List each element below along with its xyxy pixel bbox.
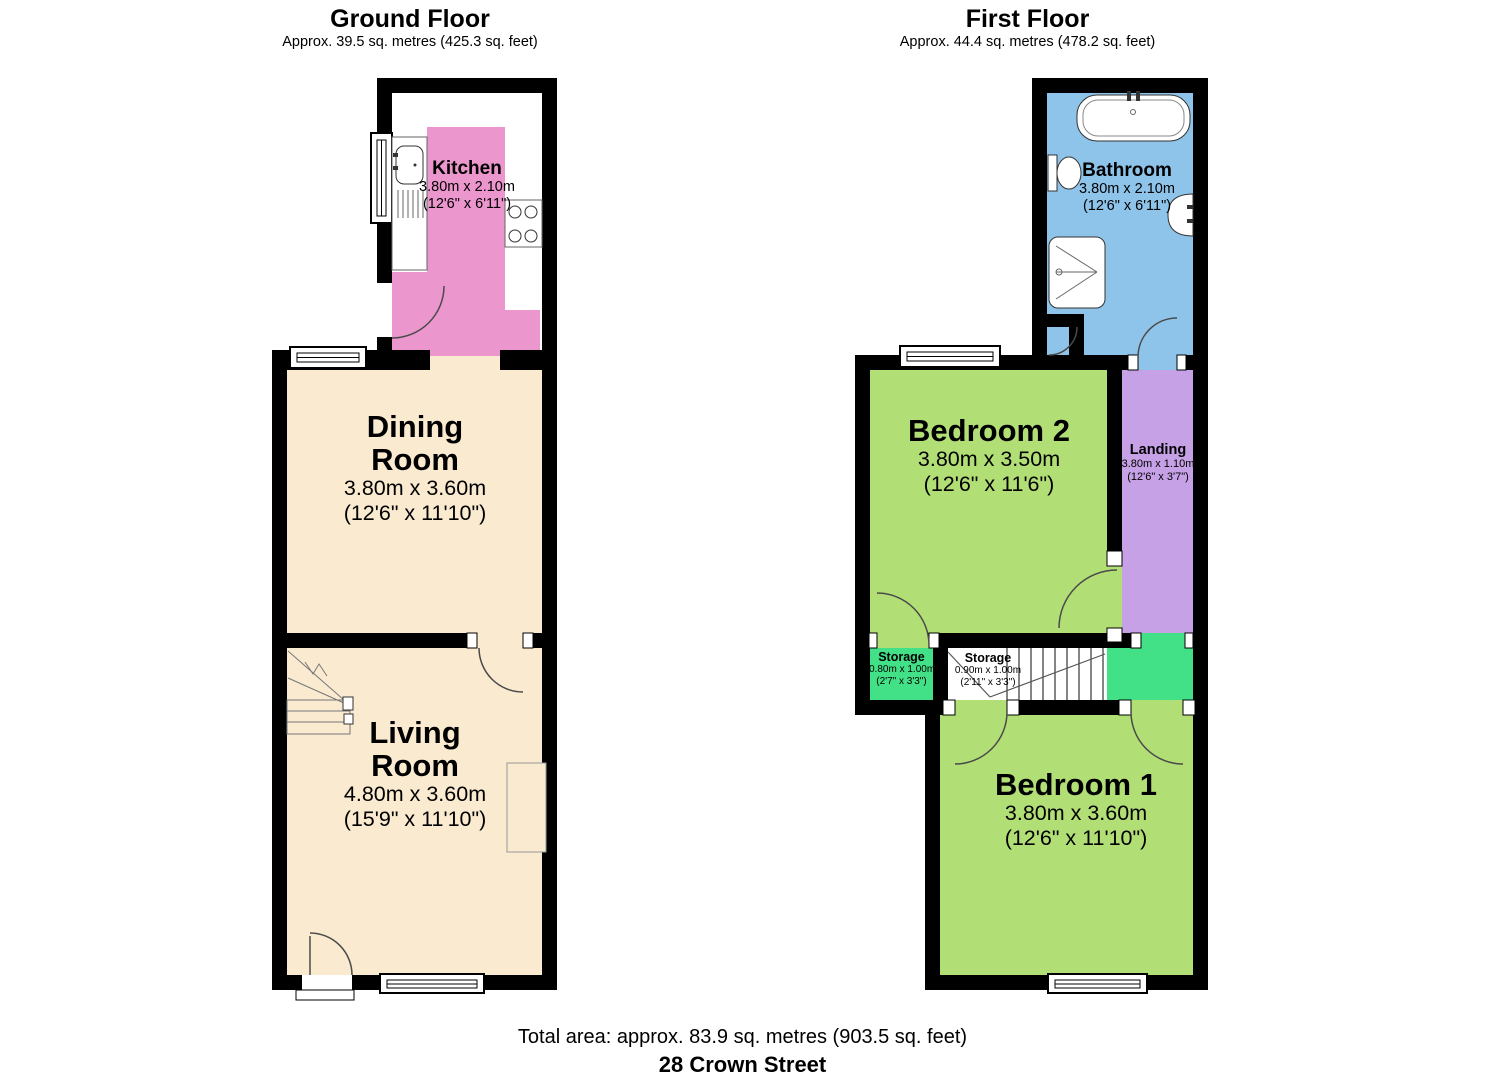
- bedroom1-room-area: [940, 715, 1193, 975]
- hob-icon: [505, 200, 542, 247]
- bedroom1-doorway-right: [1131, 700, 1183, 715]
- floorplan-canvas: Ground Floor Approx. 39.5 sq. metres (42…: [0, 0, 1485, 1080]
- door-jamb: [1128, 355, 1138, 370]
- dining-living-doorway: [477, 633, 523, 648]
- first-floor-plan: [855, 78, 1208, 993]
- front-door-leaf: [296, 990, 354, 1000]
- door-jamb: [869, 633, 877, 648]
- window-icon: [1048, 974, 1147, 993]
- shower-icon: [1049, 237, 1105, 308]
- window-icon: [371, 133, 392, 223]
- bathroom-doorway: [1138, 355, 1177, 370]
- landing-stairs-opening: [1141, 633, 1185, 648]
- chimney-breast: [507, 763, 546, 852]
- window-icon: [900, 346, 1000, 367]
- dining-room-area: [287, 370, 542, 633]
- storage2-room-area: [948, 648, 1107, 700]
- floorplan-drawing: [0, 0, 1485, 1080]
- landing-room-area: [1122, 370, 1193, 633]
- stair-top-area: [1107, 648, 1193, 700]
- door-jamb: [1007, 700, 1019, 715]
- bedroom2-room-area: [870, 370, 1107, 633]
- door-jamb: [1131, 633, 1141, 648]
- door-jamb: [1107, 628, 1122, 642]
- bedroom1-doorway-left: [955, 700, 1007, 715]
- door-jamb: [1185, 633, 1193, 648]
- door-jamb: [929, 633, 939, 648]
- door-jamb: [467, 633, 477, 648]
- front-doorway: [302, 975, 352, 990]
- kitchen-sink-icon: [392, 137, 427, 270]
- kitchen-floor-edge: [430, 350, 500, 356]
- total-area-text: Total area: approx. 83.9 sq. metres (903…: [0, 1026, 1485, 1049]
- living-room-area: [287, 648, 542, 975]
- door-jamb: [1183, 700, 1195, 715]
- storage1-room-area: [870, 648, 933, 700]
- window-icon: [290, 347, 366, 368]
- bedroom2-doorway: [1107, 566, 1122, 628]
- toilet-icon: [1048, 155, 1081, 191]
- ground-floor-plan: [272, 78, 557, 1000]
- door-jamb: [1119, 700, 1131, 715]
- window-icon: [380, 974, 484, 993]
- kitchen-doorway: [377, 283, 392, 337]
- door-jamb: [1107, 551, 1122, 566]
- door-jamb: [523, 633, 533, 648]
- address-text: 28 Crown Street: [0, 1052, 1485, 1078]
- bathtub-icon: [1077, 91, 1190, 141]
- door-jamb: [1177, 355, 1186, 370]
- storage1-doorway: [877, 633, 929, 648]
- door-jamb: [943, 700, 955, 715]
